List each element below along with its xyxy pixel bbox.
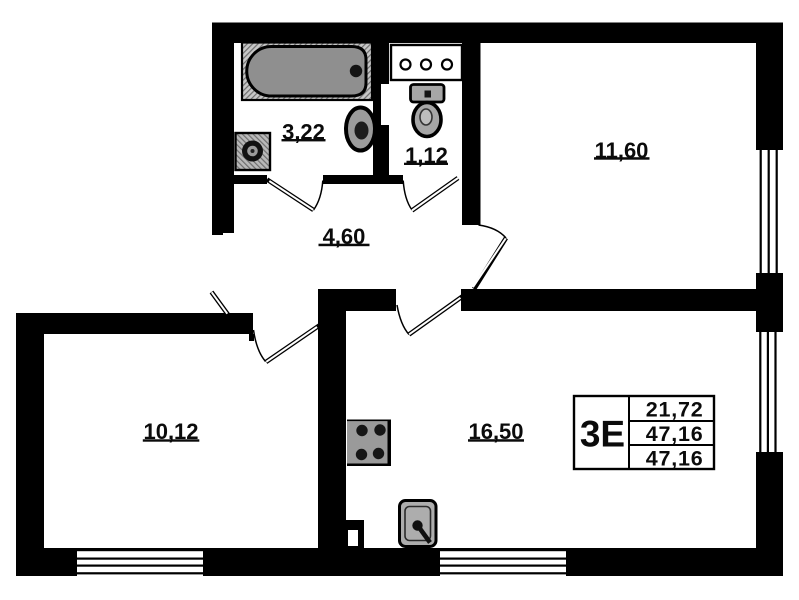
svg-text:47,16: 47,16: [646, 447, 704, 471]
svg-text:3Е: 3Е: [580, 414, 625, 455]
svg-text:21,72: 21,72: [646, 398, 704, 422]
svg-text:47,16: 47,16: [646, 422, 704, 446]
